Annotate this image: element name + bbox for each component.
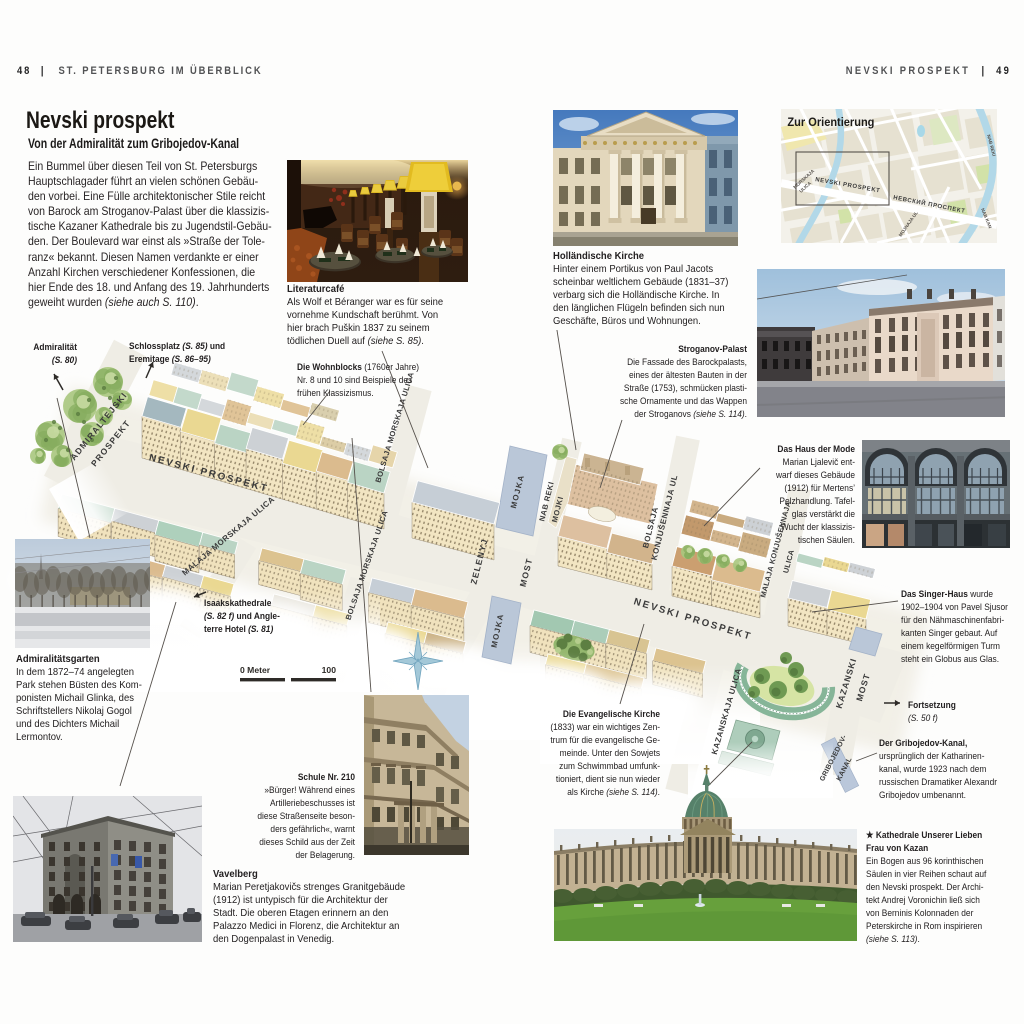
svg-text:100: 100	[322, 665, 337, 675]
svg-text:0 Meter: 0 Meter	[240, 665, 271, 675]
svg-text:Zur Orientierung: Zur Orientierung	[787, 117, 874, 129]
